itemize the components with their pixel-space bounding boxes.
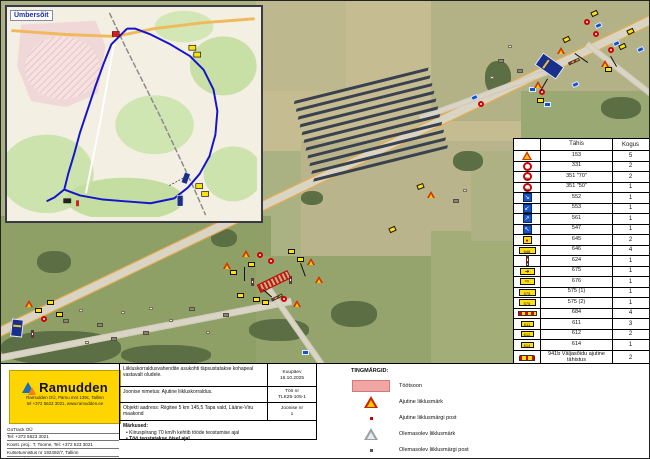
tree-cluster <box>331 301 377 327</box>
warning-triangle-marker <box>315 276 323 283</box>
date-value: 16.10.2025 <box>268 376 316 381</box>
legend-icon-cell: ⇨ <box>514 277 540 287</box>
general-note-text: Liikluskorraldusvahendite asukohti täpsu… <box>120 364 267 386</box>
warning-triangle-marker <box>223 262 231 269</box>
leader-line <box>244 267 245 281</box>
legend-icon-cell <box>514 256 540 266</box>
sig-ywide-icon: 575 <box>519 299 536 306</box>
sig-arrow-icon: ⇨ <box>520 278 535 285</box>
building <box>111 337 117 341</box>
building <box>97 323 103 327</box>
sig-941-icon <box>519 355 535 361</box>
sig-speed-icon: 70 <box>523 172 532 181</box>
map-legend-title: TINGMÄRGID: <box>351 368 650 374</box>
sig-noveh-icon <box>523 162 532 171</box>
legend-count: 1 <box>612 340 648 350</box>
contact-line: Kutsetunnistus nr 192492/7, Tallinn <box>7 448 119 456</box>
info-board-marker <box>10 318 24 337</box>
drawing-number-cell: Joonise nr 1 <box>267 403 316 420</box>
notes-list: Kiiruspiirang 70 km/h kehtib tööde teost… <box>123 430 313 442</box>
sig-arrow-icon: ➔ <box>520 268 535 275</box>
building <box>463 189 467 192</box>
sig-blue-icon: ↗ <box>523 214 532 223</box>
legend-icon-cell <box>514 162 540 172</box>
legend-code: 153 <box>540 151 612 161</box>
legend-code: 684 <box>540 309 612 319</box>
legend-count: 1 <box>612 193 648 203</box>
legend-icon-cell <box>514 151 540 161</box>
job-number-label: Töö nr <box>268 389 316 394</box>
building <box>223 313 229 317</box>
yellow-sign-marker <box>253 297 260 302</box>
legend-row: 3312 <box>514 161 650 172</box>
tree-cluster <box>37 251 71 273</box>
worksite-marker <box>112 32 119 37</box>
legend-count: 1 <box>612 298 648 308</box>
legend-icon-cell: 611 <box>514 319 540 329</box>
legend-code: 575 (1) <box>540 288 612 298</box>
title-block-row3: Objekti aadress: Riigitee 5 km 145,5 Tap… <box>120 403 316 421</box>
legend-count: 5 <box>612 151 648 161</box>
yellow-sign-marker <box>230 270 237 275</box>
work-zone-swatch <box>352 380 390 392</box>
building <box>206 331 210 334</box>
ta-plan-sheet: Ümbersõit Tähis Kogus 1535331270351 "70"… <box>0 0 650 459</box>
temporary-post-icon <box>370 417 373 420</box>
legend-row: 70351 "70"2 <box>514 171 650 182</box>
tree-cluster <box>601 97 641 119</box>
legend-row: 6116113 <box>514 318 650 329</box>
legend-code: 614 <box>540 340 612 350</box>
yellow-sign-marker <box>237 293 244 298</box>
notes-block: Märkused: Kiiruspiirang 70 km/h kehtib t… <box>120 421 316 444</box>
legend-code: 351 "70" <box>540 172 612 182</box>
building <box>79 309 83 312</box>
legend-row: ↗5611 <box>514 213 650 224</box>
drawing-name-text: Joonise nimetus: Ajutine liikluskorraldu… <box>120 387 267 402</box>
legend-header-icon-col <box>514 139 540 150</box>
sig-ywide-icon: 646 <box>519 247 536 254</box>
warning-triangle-marker <box>242 250 250 257</box>
prohibition-sign-marker <box>608 47 614 53</box>
legend-row: ↙5531 <box>514 203 650 214</box>
yellow-sign-marker <box>288 249 295 254</box>
legend-icon-cell: 70 <box>514 172 540 182</box>
map-legend-item: Töötsoon <box>351 378 650 394</box>
legend-count: 4 <box>612 246 648 256</box>
legend-icon-cell: 575 <box>514 298 540 308</box>
legend-count: 1 <box>612 277 648 287</box>
prohibition-sign-marker <box>478 101 484 107</box>
legend-row: 6466464 <box>514 245 650 256</box>
legend-count: 1 <box>612 183 648 193</box>
legend-icon-cell: 575 <box>514 288 540 298</box>
building <box>143 331 149 335</box>
map-legend-icon-cell <box>351 428 391 440</box>
map-legend-label: Ajutine liiklusmärk <box>399 399 443 405</box>
prohibition-sign-marker <box>268 258 274 264</box>
legend-code: 331 <box>540 162 612 172</box>
title-block-strip: Ramudden Ramudden OÜ, Pärnu mnt 139c, Ta… <box>1 363 650 459</box>
legend-code: 547 <box>540 225 612 235</box>
legend-count: 2 <box>612 172 648 182</box>
blue-sign-marker <box>302 350 309 355</box>
legend-icon-cell: ↗ <box>514 214 540 224</box>
building <box>189 307 195 311</box>
building <box>169 319 173 322</box>
legend-icon-cell: ➔ <box>514 267 540 277</box>
legend-count: 1 <box>612 225 648 235</box>
warning-triangle-marker <box>427 191 435 198</box>
legend-header-code: Tähis <box>540 139 612 150</box>
warning-triangle-marker <box>601 60 609 67</box>
object-address-text: Objekti aadress: Riigitee 5 km 145,5 Tap… <box>120 403 267 420</box>
map-legend-label: Olemasolev liiklusmärgi post <box>399 447 469 453</box>
legend-count: 4 <box>612 309 648 319</box>
legend-row: ⇨6761 <box>514 276 650 287</box>
legend-icon-cell: 612 <box>514 330 540 340</box>
legend-row: 50351 "50"1 <box>514 182 650 193</box>
legend-row: ↖5471 <box>514 224 650 235</box>
legend-count: 2 <box>612 330 648 340</box>
legend-count: 1 <box>612 267 648 277</box>
sig-post-icon <box>526 255 529 266</box>
building <box>85 341 89 344</box>
map-legend-label: Töötsoon <box>399 383 422 389</box>
legend-icon-cell: ↘ <box>514 193 540 203</box>
drawing-number-label: Joonise nr <box>268 406 316 411</box>
legend-code: 553 <box>540 204 612 214</box>
contact-line: Koost. proj.: T. Toome, Tel: +372 523 30… <box>7 440 119 448</box>
legend-row: 575575 (2)1 <box>514 297 650 308</box>
legend-row: ↘5521 <box>514 192 650 203</box>
prohibition-sign-marker <box>281 296 287 302</box>
legend-row: ●6452 <box>514 234 650 245</box>
title-block: Liikluskorraldusvahendite asukohti täpsu… <box>119 364 317 440</box>
legend-header-count: Kogus <box>612 139 648 150</box>
contact-line: GoTrack OÜ <box>7 426 119 433</box>
legend-code: 645 <box>540 235 612 245</box>
sig-ywide-icon: 575 <box>519 289 536 296</box>
legend-code: 561 <box>540 214 612 224</box>
logo-triangle-orange-icon <box>28 387 36 395</box>
legend-icon-cell: 50 <box>514 183 540 193</box>
legend-code: 552 <box>540 193 612 203</box>
job-number-cell: Töö nr TLK25-105-1 <box>267 387 316 402</box>
existing-sign-icon <box>364 428 378 440</box>
job-number-value: TLK25-105-1 <box>268 395 316 400</box>
building <box>508 45 512 48</box>
warning-triangle-marker <box>557 47 565 54</box>
tree-cluster <box>121 345 211 365</box>
ramudden-contact: tel +372 5623 3021, www.ramudden.ee <box>10 401 120 407</box>
building <box>121 311 125 314</box>
striped-post-marker <box>31 330 34 338</box>
yellow-sign-marker <box>297 257 304 262</box>
map-legend-block: TINGMÄRGID: TöötsoonAjutine liiklusmärkA… <box>317 364 650 459</box>
legend-count: 1 <box>612 204 648 214</box>
legend-code: 575 (2) <box>540 298 612 308</box>
map-legend-item: Ajutine liiklusmärgi post <box>351 410 650 426</box>
yellow-sign-marker <box>605 67 612 72</box>
notes-title: Märkused: <box>123 423 313 429</box>
sig-blue-icon: ↖ <box>523 225 532 234</box>
ramudden-logo: Ramudden <box>10 380 120 395</box>
map-legend-label: Ajutine liiklusmärgi post <box>399 415 456 421</box>
legend-icon-cell <box>514 309 540 319</box>
building <box>490 76 494 79</box>
legend-row: ➔6751 <box>514 266 650 277</box>
map-legend-icon-cell <box>351 396 391 408</box>
map-legend-label: Olemasolev liiklusmärk <box>399 431 455 437</box>
map-legend-icon-cell <box>351 380 391 392</box>
yellow-sign-marker <box>262 300 269 305</box>
sig-tab-icon: 612 <box>521 331 534 337</box>
blue-sign-marker <box>544 102 551 107</box>
yellow-sign-marker <box>35 308 42 313</box>
legend-row: 575575 (1)1 <box>514 287 650 298</box>
map-legend-item: Ajutine liiklusmärk <box>351 394 650 410</box>
sig-blue-icon: ↙ <box>523 204 532 213</box>
legend-code: 612 <box>540 330 612 340</box>
contact-block: GoTrack OÜTel: +372 5623 3021Koost. proj… <box>7 426 119 459</box>
overview-map-canvas <box>7 7 257 217</box>
legend-row: 6146141 <box>514 339 650 350</box>
legend-count: 2 <box>612 235 648 245</box>
sig-roadworks-icon <box>522 151 532 160</box>
yellow-sign-marker <box>56 312 63 317</box>
sig-blue-icon: ↘ <box>523 193 532 202</box>
sig-ysmall-icon: ● <box>523 236 532 244</box>
legend-count: 1 <box>612 256 648 266</box>
map-legend-icon-cell <box>351 449 391 452</box>
yellow-sign-marker <box>47 300 54 305</box>
drawing-number-value: 1 <box>268 412 316 417</box>
building <box>63 319 69 323</box>
map-legend-items: TöötsoonAjutine liiklusmärkAjutine liikl… <box>351 378 650 458</box>
temporary-sign-icon <box>364 396 378 408</box>
legend-code: 646 <box>540 246 612 256</box>
legend-icon-cell: 646 <box>514 246 540 256</box>
striped-post-marker <box>251 278 254 286</box>
title-block-row2: Joonise nimetus: Ajutine liikluskorraldu… <box>120 387 316 403</box>
sig-tab-icon: 611 <box>521 321 534 327</box>
legend-row: 6844 <box>514 308 650 319</box>
legend-count: 1 <box>612 288 648 298</box>
warning-triangle-marker <box>293 300 301 307</box>
legend-code: 611 <box>540 319 612 329</box>
title-block-row1: Liikluskorraldusvahendite asukohti täpsu… <box>120 364 316 387</box>
contact-line: Tel: +372 5623 3021 <box>7 433 119 441</box>
legend-code: 675 <box>540 267 612 277</box>
sig-barrier-icon <box>518 311 537 316</box>
legend-row: 6126122 <box>514 329 650 340</box>
legend-code: 676 <box>540 277 612 287</box>
map-legend-item: Olemasolev liiklusmärk <box>351 426 650 442</box>
yellow-sign-marker <box>248 262 255 267</box>
yellow-sign-marker <box>537 98 544 103</box>
sig-speed-icon: 50 <box>523 183 532 192</box>
warning-triangle-marker <box>307 258 315 265</box>
building <box>149 307 153 310</box>
legend-code: 351 "50" <box>540 183 612 193</box>
prohibition-sign-marker <box>593 31 599 37</box>
legend-row: 6241 <box>514 255 650 266</box>
prohibition-sign-marker <box>584 19 590 25</box>
legend-code: 624 <box>540 256 612 266</box>
legend-count: 2 <box>612 162 648 172</box>
overview-inset-map: Ümbersõit <box>5 5 263 223</box>
warning-triangle-marker <box>25 300 33 307</box>
date-label: Kuupäev <box>268 370 316 375</box>
building <box>498 59 504 63</box>
tree-cluster <box>301 191 323 205</box>
legend-icon-cell: ↙ <box>514 204 540 214</box>
legend-count: 1 <box>612 214 648 224</box>
field-patch <box>256 1 346 91</box>
legend-count: 3 <box>612 319 648 329</box>
sig-tab-icon: 614 <box>521 342 534 348</box>
ramudden-wordmark: Ramudden <box>39 380 108 395</box>
prohibition-sign-marker <box>41 316 47 322</box>
legend-table-header: Tähis Kogus <box>514 139 650 150</box>
map-legend-item: Olemasolev liiklusmärgi post <box>351 442 650 458</box>
date-cell: Kuupäev 16.10.2025 <box>267 364 316 386</box>
ramudden-logo-box: Ramudden Ramudden OÜ, Pärnu mnt 139c, Ta… <box>9 370 121 424</box>
legend-icon-cell: 614 <box>514 340 540 350</box>
prohibition-sign-marker <box>257 252 263 258</box>
legend-icon-cell: ↖ <box>514 225 540 235</box>
building <box>453 199 459 203</box>
building <box>517 69 523 73</box>
existing-post-icon <box>370 449 373 452</box>
note-item: Töö teostatakse öisel ajal <box>126 436 313 442</box>
map-legend-icon-cell <box>351 417 391 420</box>
inset-title: Ümbersõit <box>10 10 53 21</box>
legend-row: 1535 <box>514 150 650 161</box>
tree-cluster <box>453 151 483 171</box>
legend-icon-cell: ● <box>514 235 540 245</box>
